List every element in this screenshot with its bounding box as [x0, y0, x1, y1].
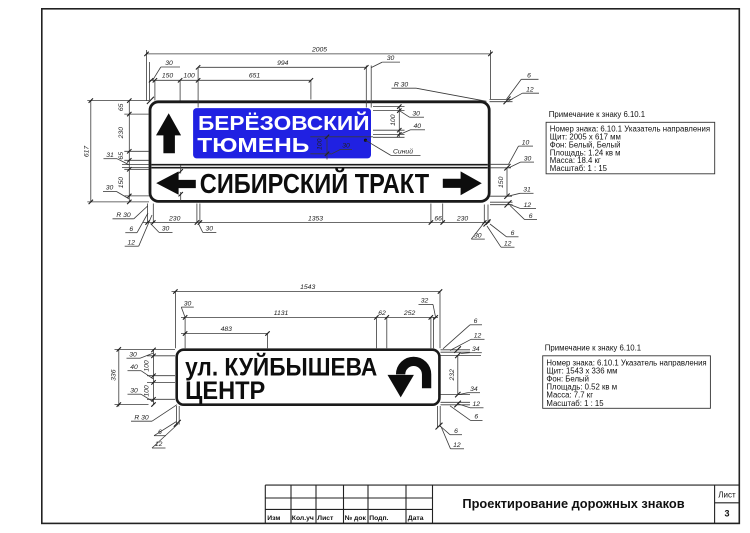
svg-text:6: 6	[511, 230, 515, 237]
svg-text:Синий: Синий	[393, 147, 413, 155]
svg-text:10: 10	[522, 139, 530, 146]
svg-text:100: 100	[390, 114, 397, 126]
svg-text:30: 30	[162, 226, 170, 233]
svg-text:Кол.уч: Кол.уч	[292, 515, 314, 522]
svg-text:230: 230	[456, 216, 469, 223]
svg-text:40: 40	[130, 364, 138, 371]
svg-text:100: 100	[183, 73, 195, 80]
svg-text:150: 150	[118, 177, 125, 189]
svg-text:30: 30	[412, 110, 420, 117]
svg-text:66: 66	[434, 216, 442, 223]
svg-text:100: 100	[144, 385, 151, 397]
svg-text:12: 12	[524, 202, 532, 209]
svg-text:30: 30	[106, 185, 114, 192]
svg-text:БЕРЁЗОВСКИЙ: БЕРЁЗОВСКИЙ	[198, 111, 370, 135]
svg-text:6: 6	[474, 318, 478, 325]
svg-text:651: 651	[249, 73, 261, 80]
svg-text:СИБИРСКИЙ ТРАКТ: СИБИРСКИЙ ТРАКТ	[200, 167, 430, 199]
svg-text:34: 34	[470, 386, 478, 393]
svg-text:150: 150	[162, 73, 174, 80]
svg-text:2005: 2005	[311, 47, 327, 54]
svg-text:30: 30	[342, 143, 350, 150]
svg-text:232: 232	[449, 369, 456, 382]
svg-text:30: 30	[474, 232, 482, 239]
svg-text:994: 994	[277, 60, 289, 67]
svg-text:30: 30	[387, 55, 395, 62]
svg-text:100: 100	[316, 138, 323, 150]
svg-text:34: 34	[472, 346, 480, 353]
svg-text:150: 150	[498, 176, 505, 188]
svg-text:12: 12	[128, 239, 136, 246]
svg-text:32: 32	[421, 298, 429, 305]
svg-text:336: 336	[110, 369, 117, 381]
svg-text:30: 30	[206, 226, 214, 233]
svg-text:3: 3	[724, 509, 729, 519]
svg-text:31: 31	[106, 152, 114, 159]
svg-text:Подп.: Подп.	[369, 515, 388, 522]
svg-text:Изм: Изм	[267, 515, 280, 522]
svg-text:230: 230	[168, 216, 181, 223]
svg-text:100: 100	[144, 360, 151, 372]
svg-text:483: 483	[221, 326, 233, 333]
svg-text:65: 65	[118, 152, 125, 160]
svg-text:30: 30	[184, 300, 192, 307]
svg-text:617: 617	[83, 146, 90, 158]
svg-text:R 30: R 30	[116, 212, 131, 219]
svg-text:12: 12	[453, 442, 461, 449]
svg-text:12: 12	[504, 240, 512, 247]
svg-text:30: 30	[524, 155, 532, 162]
svg-text:Лист: Лист	[718, 491, 736, 500]
svg-text:№ док: № док	[345, 515, 367, 522]
svg-text:Примечание к знаку 6.10.1: Примечание к знаку 6.10.1	[549, 110, 645, 119]
svg-text:Проектирование дорожных знаков: Проектирование дорожных знаков	[462, 496, 684, 511]
svg-text:R 30: R 30	[134, 414, 149, 421]
svg-text:30: 30	[130, 387, 138, 394]
svg-text:6: 6	[527, 73, 531, 80]
svg-text:31: 31	[523, 187, 531, 194]
svg-text:62: 62	[378, 310, 386, 317]
svg-text:R 30: R 30	[394, 81, 409, 88]
svg-text:Масштаб: 1 : 15: Масштаб: 1 : 15	[550, 164, 608, 173]
svg-text:12: 12	[473, 401, 481, 408]
svg-text:65: 65	[118, 103, 125, 111]
svg-text:12: 12	[474, 333, 482, 340]
svg-text:1543: 1543	[300, 284, 315, 291]
svg-text:6: 6	[474, 414, 478, 421]
svg-text:1131: 1131	[274, 310, 289, 317]
svg-text:30: 30	[165, 60, 173, 67]
svg-text:Масштаб: 1 : 15: Масштаб: 1 : 15	[546, 399, 604, 408]
svg-text:40: 40	[414, 123, 422, 130]
svg-text:Дата: Дата	[408, 515, 424, 522]
svg-text:6: 6	[129, 226, 133, 233]
svg-text:6: 6	[454, 428, 458, 435]
svg-text:6: 6	[529, 213, 533, 220]
svg-text:Примечание к знаку 6.10.1: Примечание к знаку 6.10.1	[545, 344, 641, 353]
svg-text:ЦЕНТР: ЦЕНТР	[185, 377, 265, 405]
svg-text:252: 252	[403, 310, 416, 317]
svg-text:30: 30	[129, 351, 137, 358]
svg-text:230: 230	[118, 127, 125, 140]
svg-text:12: 12	[526, 86, 534, 93]
svg-text:1353: 1353	[308, 216, 323, 223]
svg-text:Лист: Лист	[317, 515, 334, 522]
svg-text:ТЮМЕНЬ: ТЮМЕНЬ	[197, 135, 309, 157]
